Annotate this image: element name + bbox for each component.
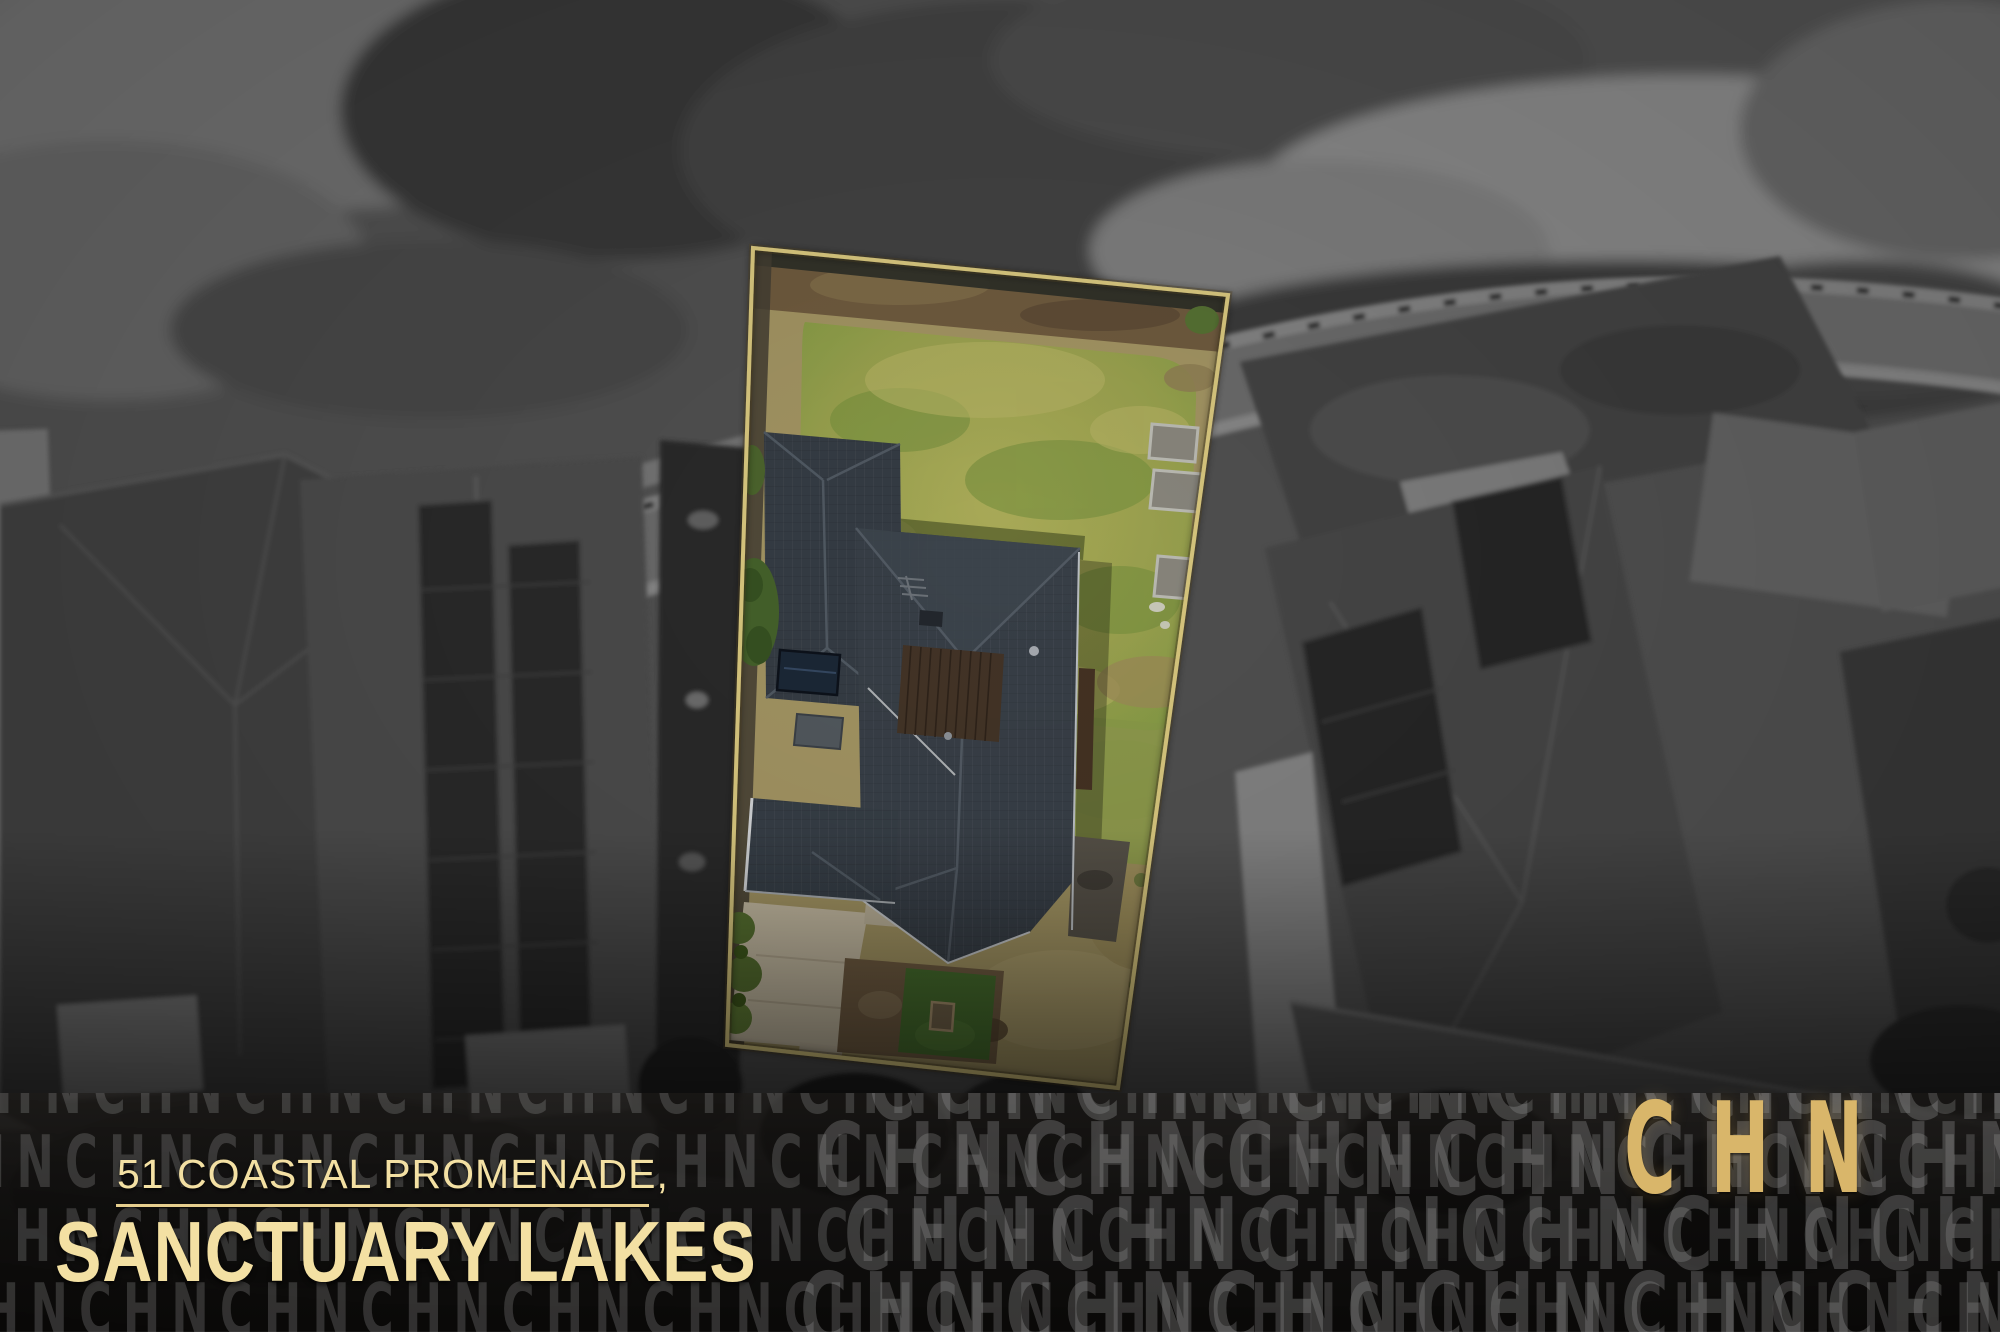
footer-band: CHNCHNCHNCHNCHNCHNCHNCHNCHNCHNCHNCHNCHNC… bbox=[0, 1093, 2000, 1332]
chn-watermark-pattern-large: CHNCHNCHNCHNCHNCHNCHNCHNCHNCHNCHNCHNCHNC… bbox=[880, 1093, 2000, 1332]
marketing-image: CHNCHNCHNCHNCHNCHNCHNCHNCHNCHNCHNCHNCHNC… bbox=[0, 0, 2000, 1332]
